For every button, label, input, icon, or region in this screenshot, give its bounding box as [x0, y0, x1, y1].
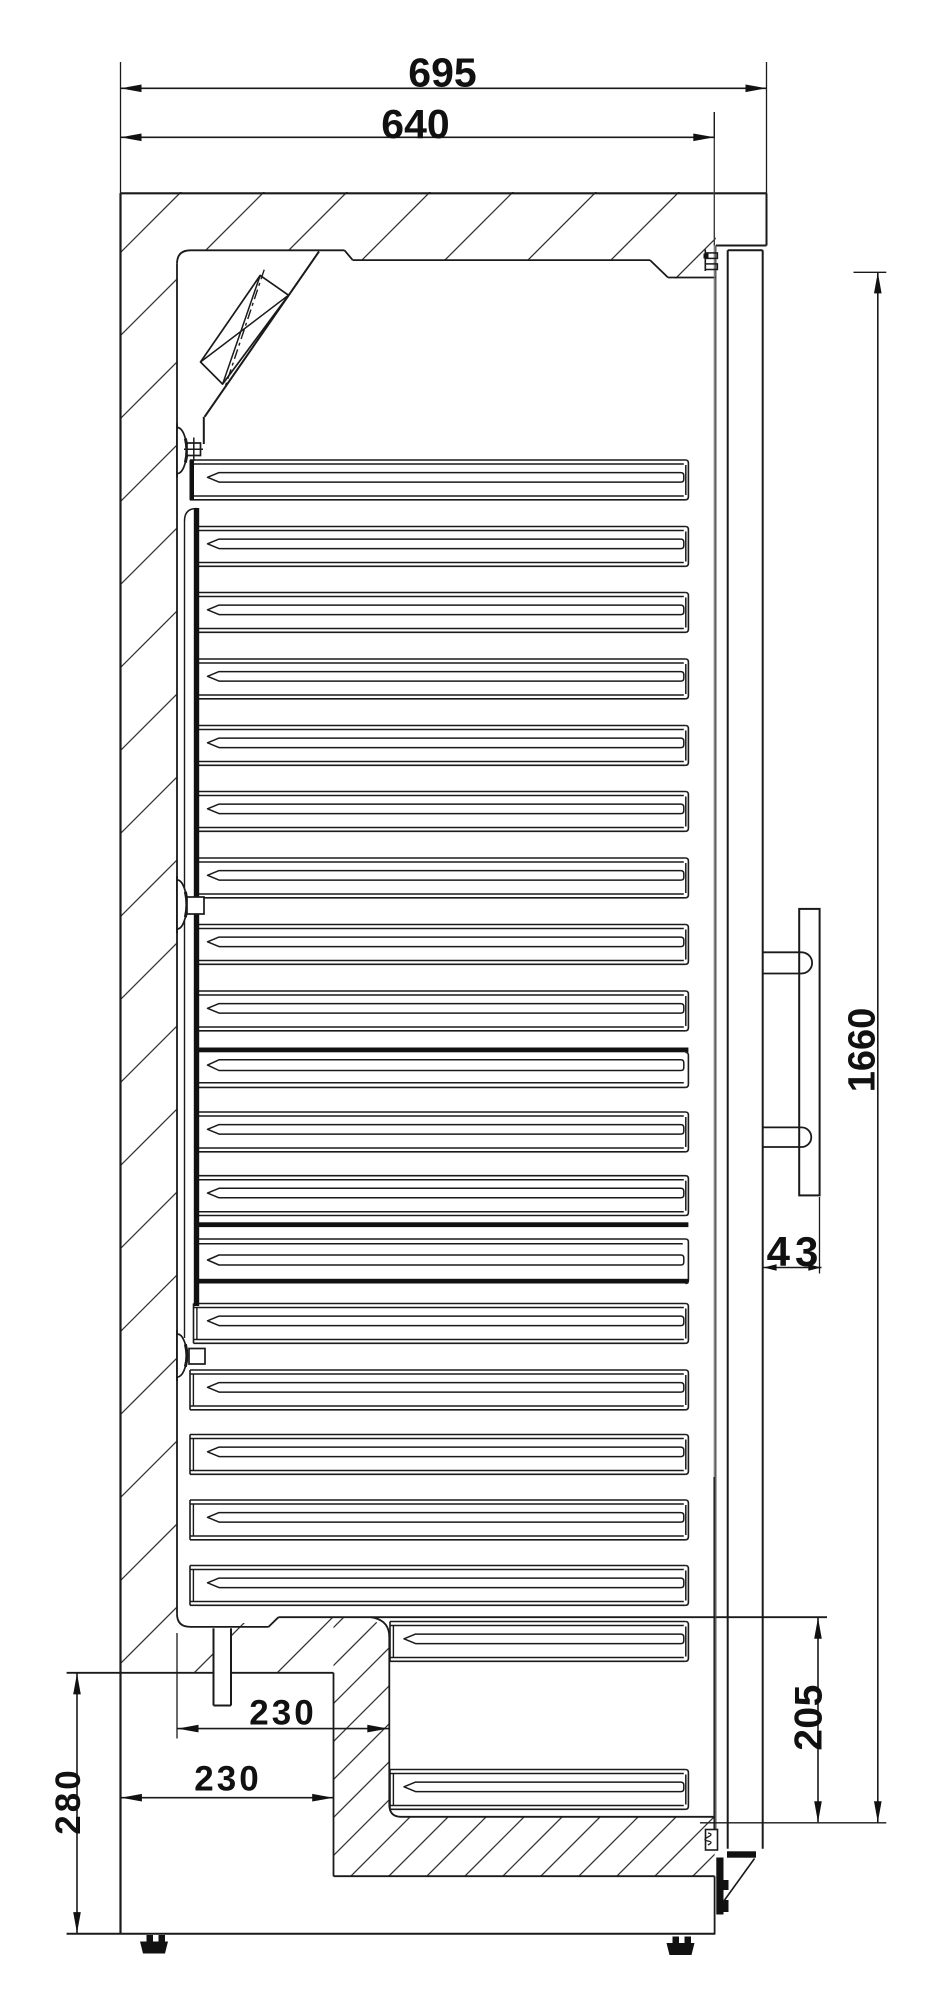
svg-text:1660: 1660 — [842, 1008, 884, 1093]
svg-text:230: 230 — [249, 1694, 316, 1733]
svg-text:280: 280 — [49, 1767, 88, 1834]
svg-text:695: 695 — [408, 50, 476, 96]
svg-text:205: 205 — [788, 1684, 831, 1751]
svg-text:43: 43 — [767, 1228, 824, 1275]
svg-text:230: 230 — [194, 1760, 261, 1799]
svg-text:640: 640 — [381, 101, 449, 147]
